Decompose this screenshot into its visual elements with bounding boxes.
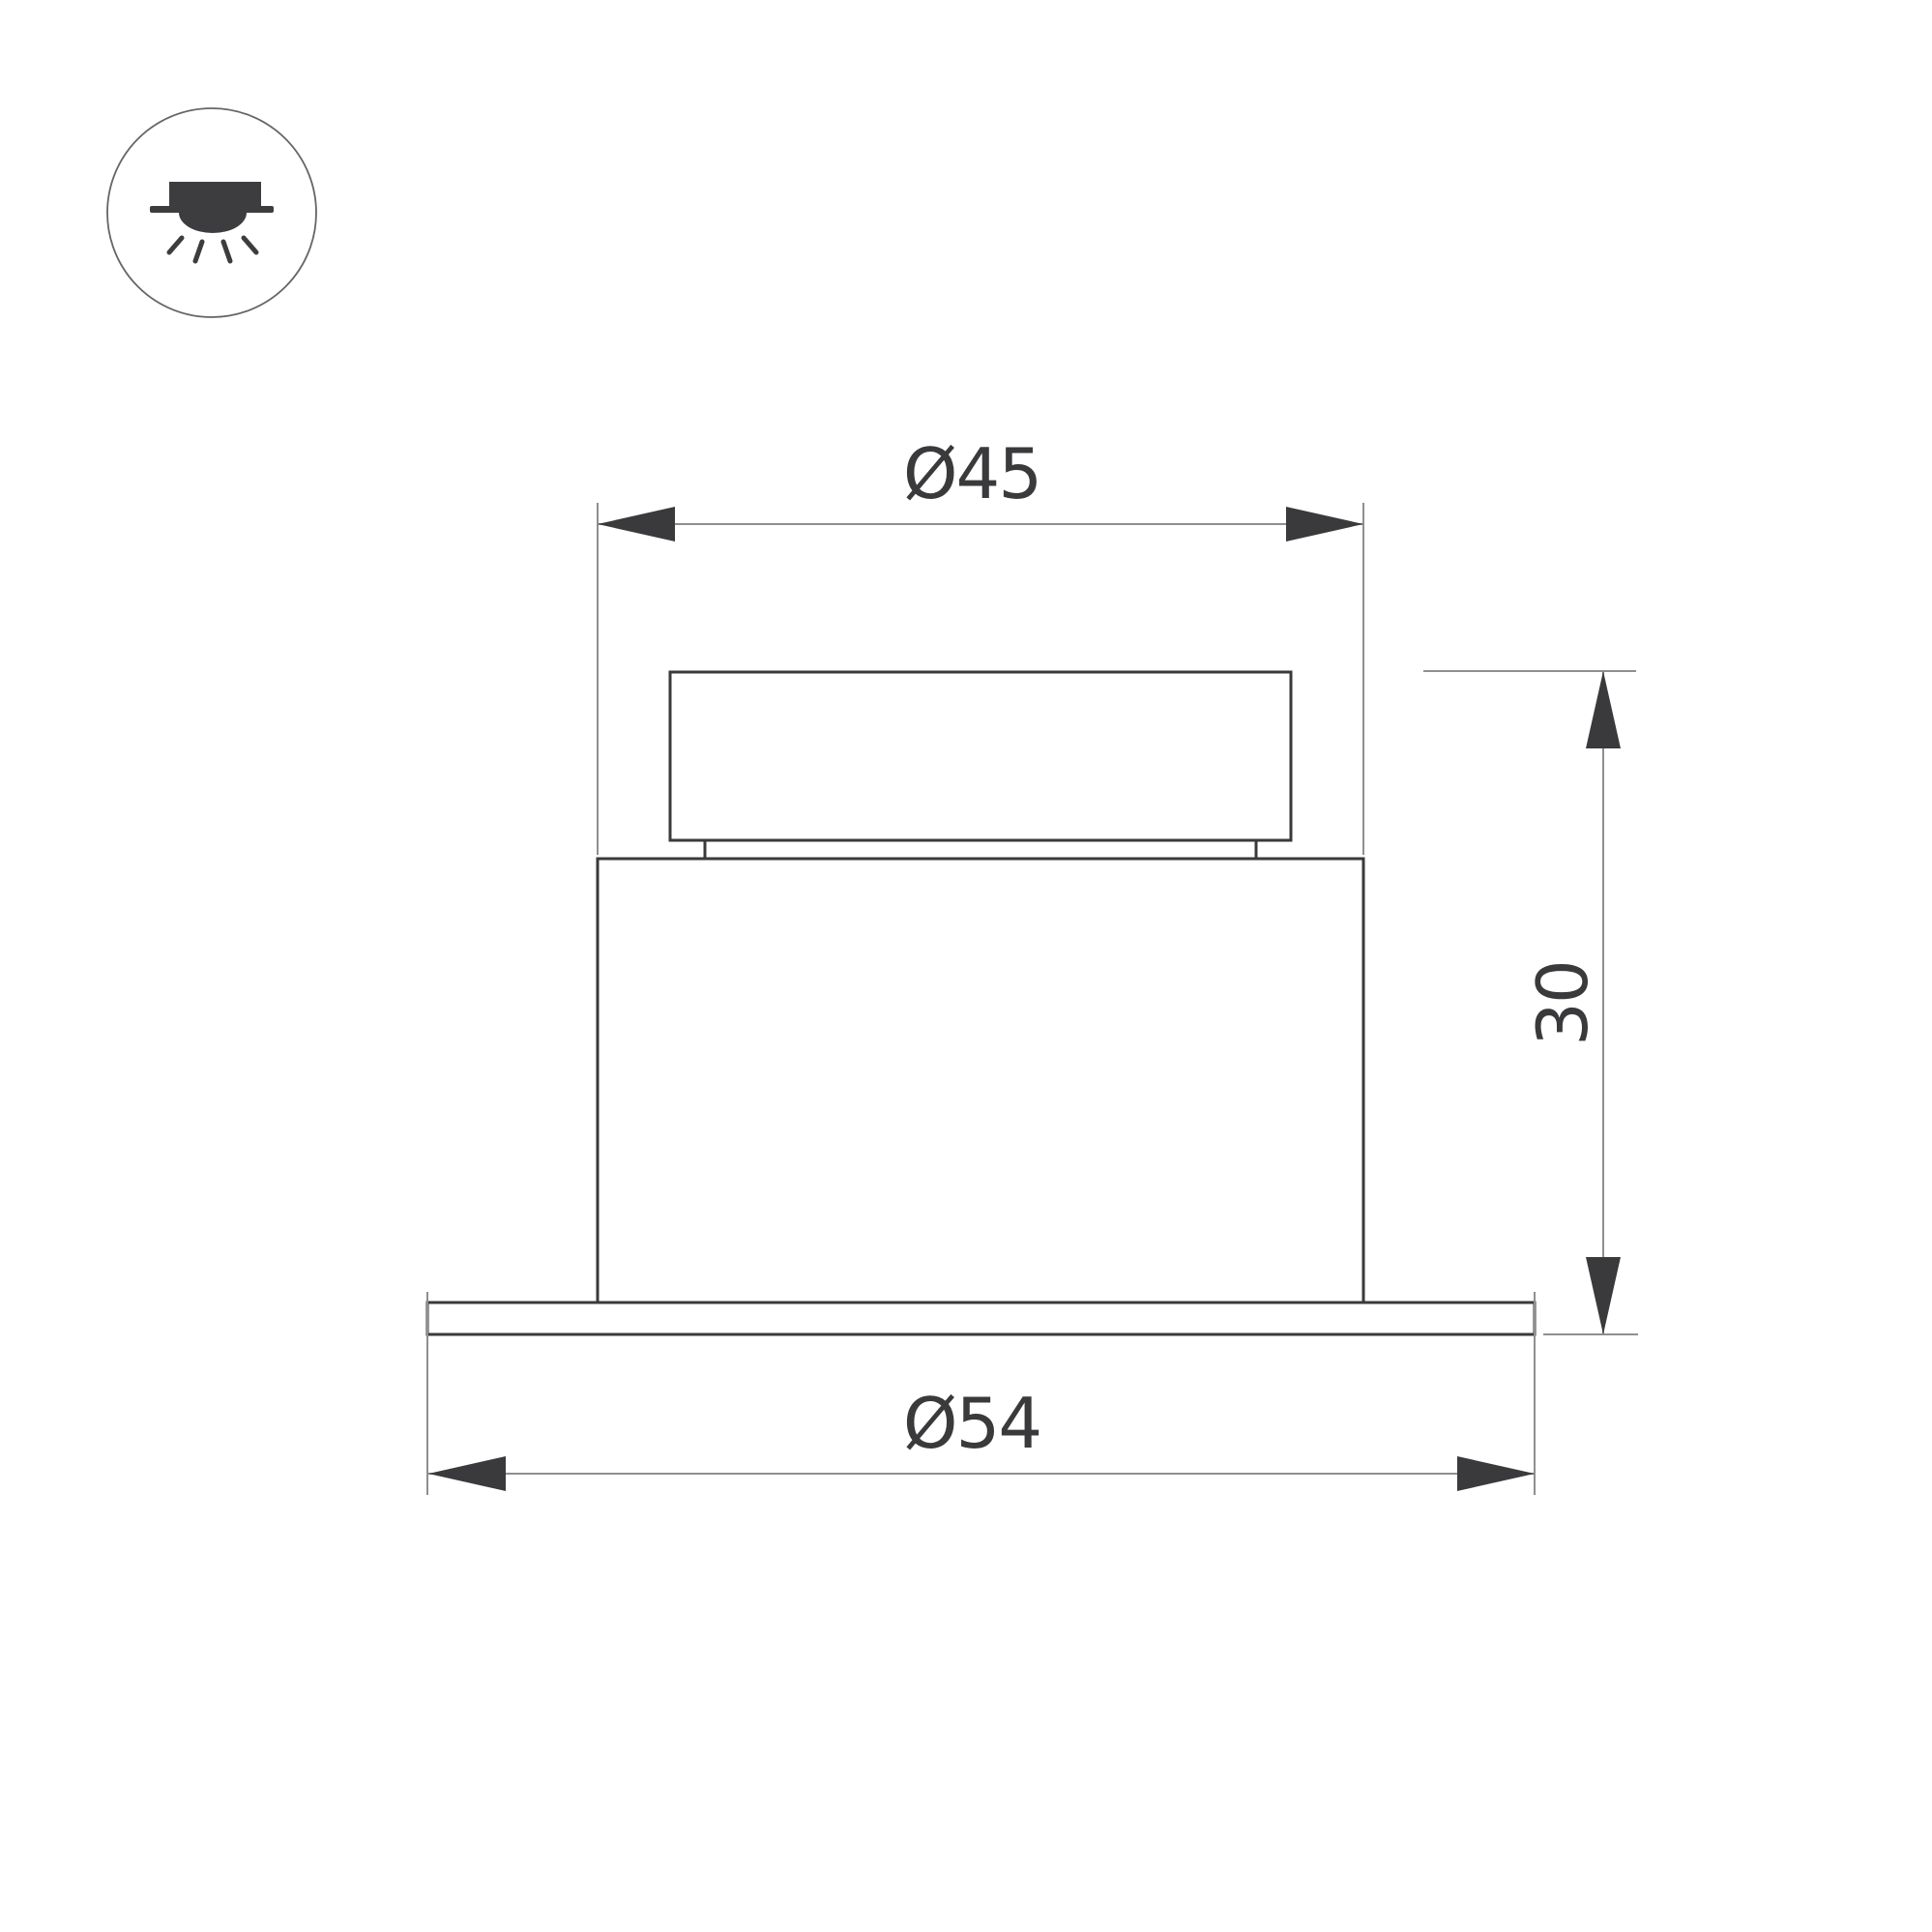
dimension-label-body-diameter: Ø45 — [903, 433, 1040, 514]
driver-box-profile — [670, 672, 1291, 840]
arrowhead-left-icon — [428, 1456, 506, 1491]
arrowhead-up-icon — [1586, 671, 1621, 748]
technical-drawing: Ø45 30 Ø54 — [0, 0, 1932, 1932]
arrowhead-down-icon — [1586, 1257, 1621, 1334]
icon-ceiling-flange — [150, 206, 274, 213]
arrowhead-right-icon — [1457, 1456, 1535, 1491]
drawing-sheet: Ø45 30 Ø54 — [0, 0, 1932, 1932]
arrowhead-left-icon — [598, 507, 675, 542]
dimension-label-height: 30 — [1522, 961, 1603, 1046]
recessed-downlight-icon — [107, 108, 316, 317]
icon-lamp-body — [169, 182, 261, 208]
body-profile — [598, 859, 1363, 1303]
flange-profile — [427, 1303, 1535, 1334]
luminaire-outline — [427, 672, 1535, 1334]
dimension-label-flange-diameter: Ø54 — [903, 1383, 1040, 1464]
dimension-height: 30 — [1423, 671, 1638, 1334]
arrowhead-right-icon — [1286, 507, 1363, 542]
